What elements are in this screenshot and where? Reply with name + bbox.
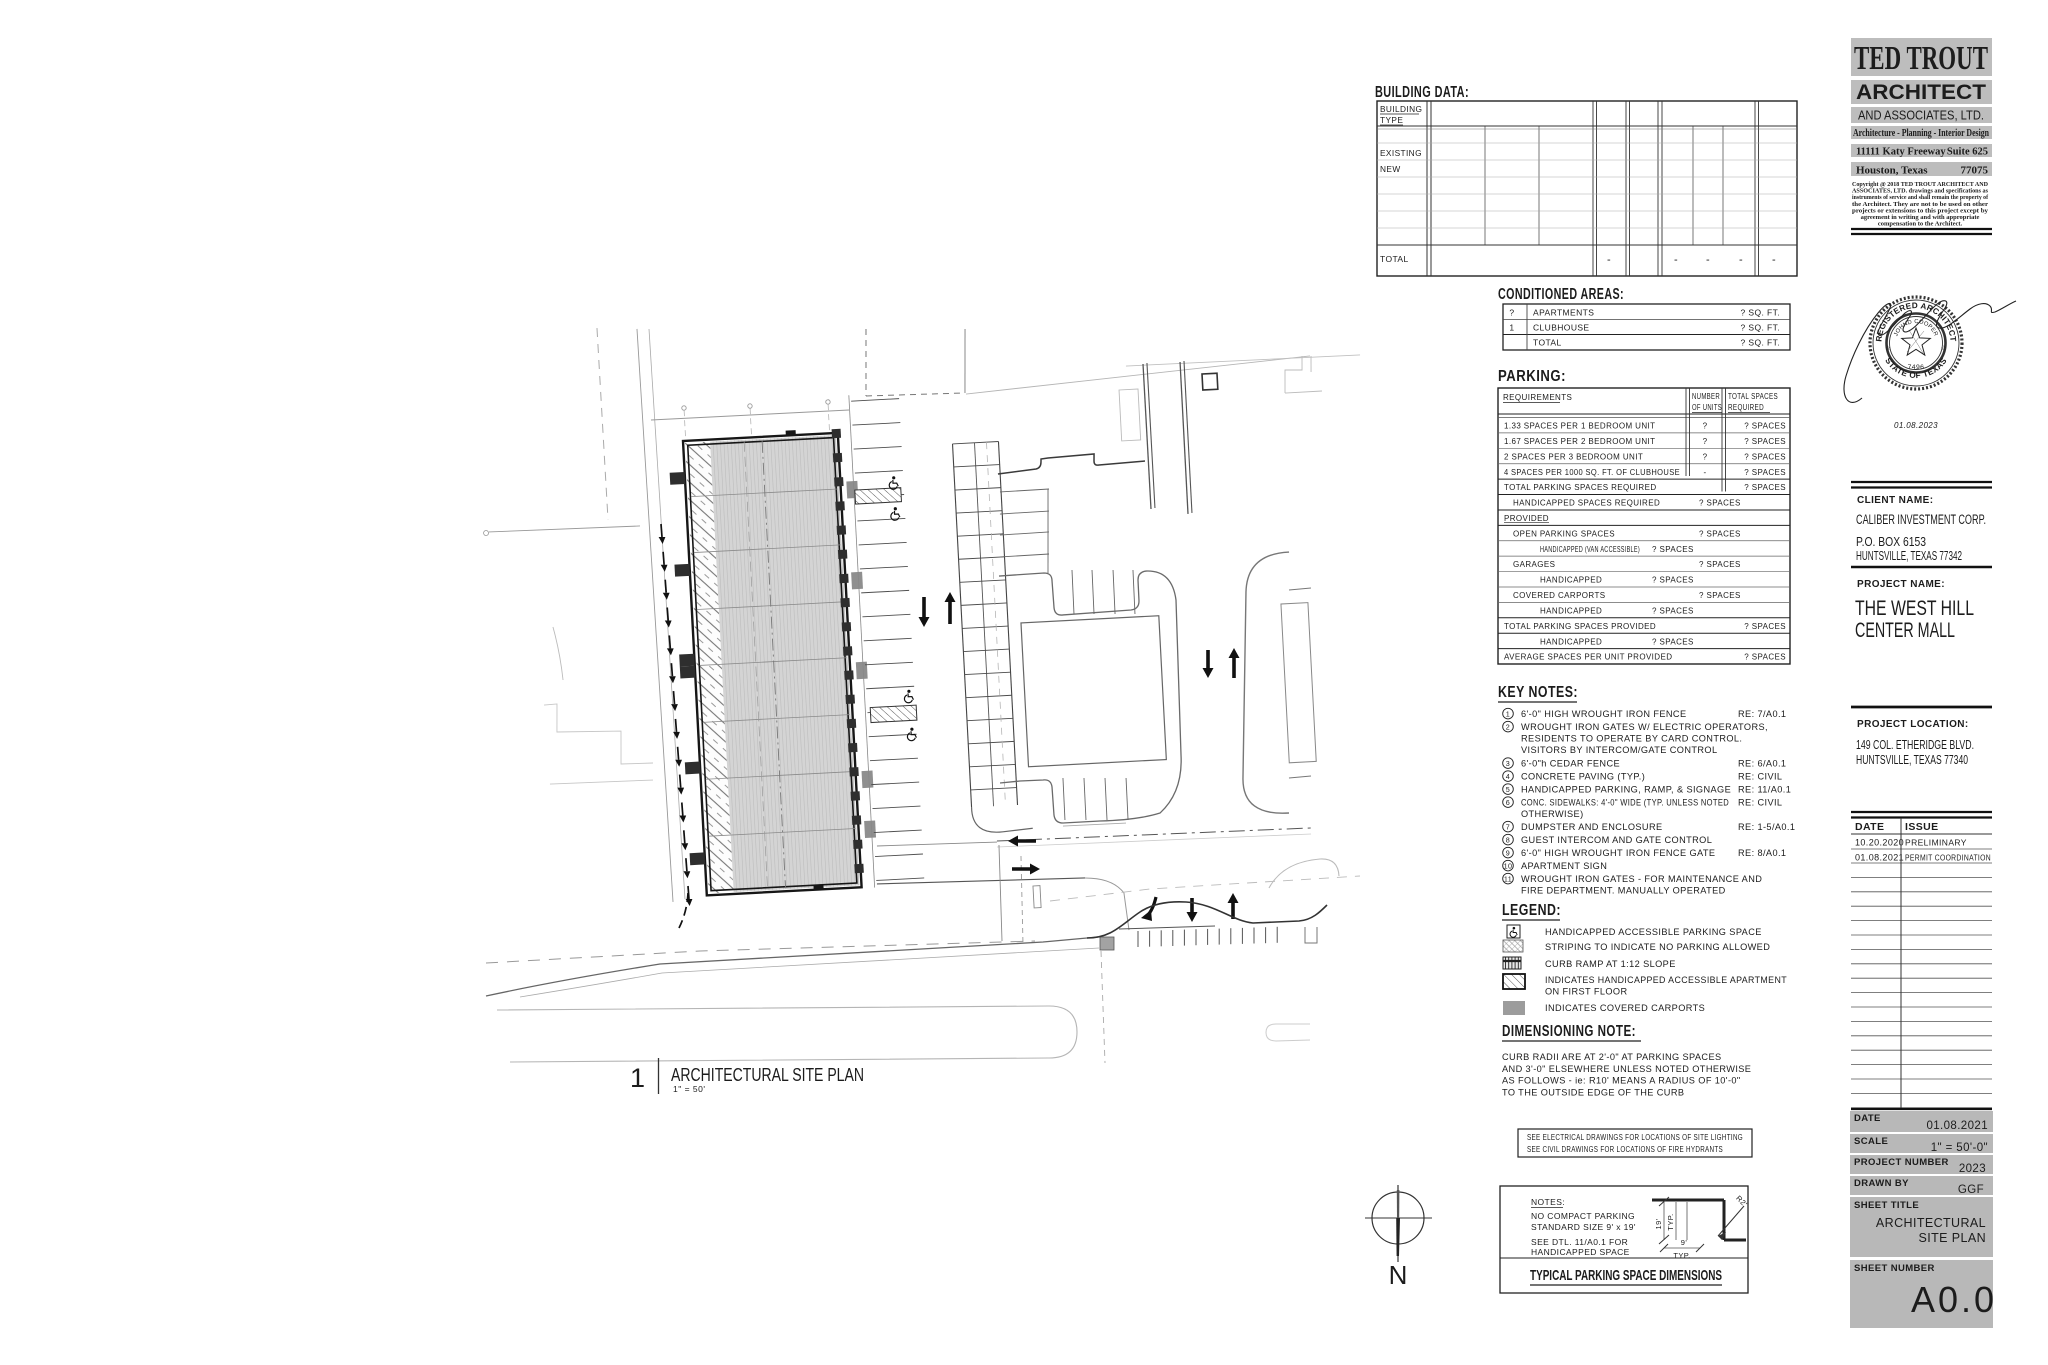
svg-text:CALIBER INVESTMENT CORP.: CALIBER INVESTMENT CORP. [1856, 512, 1986, 527]
svg-text:FIRE DEPARTMENT. MANUALLY OPE: FIRE DEPARTMENT. MANUALLY OPERATED [1521, 886, 1726, 896]
svg-text:?: ? [1509, 308, 1514, 318]
svg-text:11: 11 [1504, 874, 1512, 883]
svg-text:HUNTSVILLE, TEXAS 77342: HUNTSVILLE, TEXAS 77342 [1856, 549, 1962, 563]
svg-text:SHEET NUMBER: SHEET NUMBER [1854, 1263, 1935, 1274]
svg-text:? SPACES: ? SPACES [1744, 422, 1786, 431]
svg-text:LEGEND:: LEGEND: [1502, 902, 1561, 919]
svg-text:REQUIRED: REQUIRED [1728, 403, 1764, 412]
svg-text:OTHERWISE): OTHERWISE) [1521, 809, 1584, 819]
svg-text:NEW: NEW [1380, 164, 1401, 174]
svg-text:N: N [1389, 1260, 1408, 1290]
svg-text:CONDITIONED AREAS:: CONDITIONED AREAS: [1498, 286, 1624, 303]
svg-text:CLUBHOUSE: CLUBHOUSE [1533, 323, 1590, 333]
svg-text:-: - [1772, 254, 1776, 266]
svg-text:BUILDING: BUILDING [1380, 104, 1422, 114]
svg-text:2 SPACES PER 3 BEDROOM UNIT: 2 SPACES PER 3 BEDROOM UNIT [1504, 452, 1643, 461]
svg-text:CURB RADII ARE AT 2'-0" AT PAR: CURB RADII ARE AT 2'-0" AT PARKING SPACE… [1502, 1052, 1722, 1062]
svg-text:PROJECT LOCATION:: PROJECT LOCATION: [1857, 719, 1969, 730]
svg-text:TYPE: TYPE [1380, 115, 1403, 125]
svg-text:TOTAL PARKING SPACES REQUIRED: TOTAL PARKING SPACES REQUIRED [1504, 483, 1657, 492]
svg-text:SHEET TITLE: SHEET TITLE [1854, 1200, 1919, 1211]
svg-text:5: 5 [1506, 785, 1510, 794]
svg-text:NO COMPACT PARKING: NO COMPACT PARKING [1531, 1211, 1635, 1221]
svg-text:CURB RAMP AT 1:12 SLOPE: CURB RAMP AT 1:12 SLOPE [1545, 959, 1676, 969]
svg-text:PRELIMINARY: PRELIMINARY [1905, 838, 1967, 848]
svg-text:TYP.: TYP. [1673, 1251, 1690, 1260]
svg-text:☆: ☆ [1885, 344, 1891, 352]
svg-text:? SPACES: ? SPACES [1744, 622, 1786, 631]
svg-text:7: 7 [1506, 822, 1510, 831]
svg-text:ARCHITECTURAL SITE PLAN: ARCHITECTURAL SITE PLAN [671, 1064, 864, 1085]
svg-text:ON FIRST FLOOR: ON FIRST FLOOR [1545, 987, 1628, 997]
svg-text:CLIENT NAME:: CLIENT NAME: [1857, 495, 1933, 506]
svg-text:10: 10 [1504, 861, 1513, 870]
svg-text:? SPACES: ? SPACES [1652, 606, 1694, 615]
svg-text:ARCHITECT: ARCHITECT [1856, 81, 1986, 104]
svg-text:SEE DTL. 11/A0.1 FOR: SEE DTL. 11/A0.1 FOR [1531, 1237, 1628, 1247]
svg-text:? SQ. FT.: ? SQ. FT. [1741, 338, 1781, 348]
svg-text:? SPACES: ? SPACES [1699, 591, 1741, 600]
svg-text:1" = 50'-0": 1" = 50'-0" [1931, 1142, 1988, 1154]
svg-text:SITE PLAN: SITE PLAN [1918, 1231, 1986, 1245]
svg-text:6'-0"h CEDAR FENCE: 6'-0"h CEDAR FENCE [1521, 759, 1620, 769]
svg-text:DUMPSTER AND ENCLOSURE: DUMPSTER AND ENCLOSURE [1521, 822, 1663, 832]
svg-text:9: 9 [1506, 848, 1510, 857]
svg-text:8: 8 [1506, 835, 1510, 844]
svg-text:EXISTING: EXISTING [1380, 148, 1422, 158]
svg-text:AS FOLLOWS - ie: R10' MEANS A: AS FOLLOWS - ie: R10' MEANS A RADIUS OF … [1502, 1076, 1741, 1086]
svg-text:? SQ. FT.: ? SQ. FT. [1741, 323, 1781, 333]
svg-text:COVERED CARPORTS: COVERED CARPORTS [1513, 591, 1606, 600]
svg-text:HANDICAPPED PARKING, RAMP, & S: HANDICAPPED PARKING, RAMP, & SIGNAGE [1521, 785, 1731, 795]
svg-text:STRIPING TO INDICATE NO PARKIN: STRIPING TO INDICATE NO PARKING ALLOWED [1545, 942, 1770, 952]
svg-text:RE: 7/A0.1: RE: 7/A0.1 [1738, 709, 1786, 719]
svg-text:01.08.2023: 01.08.2023 [1894, 421, 1938, 430]
svg-text:WROUGHT IRON GATES W/ ELECTRIC: WROUGHT IRON GATES W/ ELECTRIC OPERATORS… [1521, 722, 1768, 732]
svg-text:? SPACES: ? SPACES [1699, 499, 1741, 508]
svg-text:CENTER MALL: CENTER MALL [1855, 618, 1955, 642]
svg-text:GUEST INTERCOM AND GATE CONTRO: GUEST INTERCOM AND GATE CONTROL [1521, 835, 1712, 845]
svg-text:77075: 77075 [1961, 165, 1989, 177]
svg-text:REQUIREMENTS: REQUIREMENTS [1503, 393, 1572, 402]
svg-text:AND 3'-0" ELSEWHERE UNLESS NOT: AND 3'-0" ELSEWHERE UNLESS NOTED OTHERWI… [1502, 1064, 1751, 1074]
svg-text:RE: CIVIL: RE: CIVIL [1738, 772, 1782, 782]
svg-text:HANDICAPPED: HANDICAPPED [1540, 637, 1602, 646]
svg-text:HANDICAPPED: HANDICAPPED [1540, 576, 1602, 585]
svg-text:NUMBER: NUMBER [1692, 392, 1720, 401]
svg-text:TOTAL PARKING SPACES PROVIDED: TOTAL PARKING SPACES PROVIDED [1504, 622, 1656, 631]
svg-text:4 SPACES PER 1000 SQ. FT. OF C: 4 SPACES PER 1000 SQ. FT. OF CLUBHOUSE [1504, 468, 1680, 477]
svg-text:TOTAL SPACES: TOTAL SPACES [1728, 392, 1778, 401]
svg-text:INDICATES HANDICAPPED ACCESSIB: INDICATES HANDICAPPED ACCESSIBLE APARTME… [1545, 975, 1787, 985]
svg-text:CONCRETE PAVING (TYP.): CONCRETE PAVING (TYP.) [1521, 772, 1645, 782]
svg-text:1: 1 [630, 1063, 645, 1093]
svg-text:4: 4 [1506, 772, 1510, 781]
svg-text:RE: CIVIL: RE: CIVIL [1738, 798, 1782, 808]
svg-text:1: 1 [1509, 323, 1514, 333]
svg-text:1.33 SPACES PER 1 BEDROOM UNIT: 1.33 SPACES PER 1 BEDROOM UNIT [1504, 422, 1655, 431]
svg-text:KEY NOTES:: KEY NOTES: [1498, 684, 1578, 701]
svg-text:HANDICAPPED SPACES REQUIRED: HANDICAPPED SPACES REQUIRED [1513, 499, 1660, 508]
svg-text:? SPACES: ? SPACES [1744, 483, 1786, 492]
svg-text:PERMIT COORDINATION: PERMIT COORDINATION [1905, 853, 1991, 863]
svg-text:INDICATES COVERED CARPORTS: INDICATES COVERED CARPORTS [1545, 1003, 1705, 1013]
svg-text:CONC. SIDEWALKS: 4'-0" WIDE (: CONC. SIDEWALKS: 4'-0" WIDE (TYP. UNLESS… [1521, 798, 1729, 808]
svg-text:DIMENSIONING NOTE:: DIMENSIONING NOTE: [1502, 1023, 1636, 1040]
svg-text:HANDICAPPED: HANDICAPPED [1540, 606, 1602, 615]
svg-text:BUILDING DATA:: BUILDING DATA: [1375, 84, 1469, 101]
svg-text:TED TROUT: TED TROUT [1854, 40, 1988, 77]
svg-text:-: - [1706, 254, 1710, 266]
svg-text:SEE CIVIL DRAWINGS FOR LOCATIO: SEE CIVIL DRAWINGS FOR LOCATIONS OF FIRE… [1527, 1145, 1723, 1154]
svg-text:ARCHITECTURAL: ARCHITECTURAL [1876, 1216, 1986, 1230]
svg-text:DRAWN BY: DRAWN BY [1854, 1178, 1909, 1189]
svg-text:RE: 8/A0.1: RE: 8/A0.1 [1738, 848, 1786, 858]
svg-text:P.O. BOX 6153: P.O. BOX 6153 [1856, 535, 1926, 549]
svg-text:?: ? [1703, 452, 1708, 461]
svg-text:PROJECT NUMBER: PROJECT NUMBER [1854, 1157, 1949, 1168]
svg-text:? SPACES: ? SPACES [1652, 576, 1694, 585]
svg-text:RESIDENTS TO OPERATE BY CARD C: RESIDENTS TO OPERATE BY CARD CONTROL. [1521, 734, 1742, 744]
svg-text:SCALE: SCALE [1854, 1136, 1888, 1147]
svg-text:01.08.2021: 01.08.2021 [1926, 1120, 1988, 1132]
svg-text:GARAGES: GARAGES [1513, 560, 1555, 569]
svg-text:APARTMENT SIGN: APARTMENT SIGN [1521, 861, 1607, 871]
svg-text:19': 19' [1654, 1218, 1663, 1229]
svg-text:Architecture - Planning - Inte: Architecture - Planning - Interior Desig… [1853, 128, 1989, 139]
svg-text:6: 6 [1506, 798, 1510, 807]
svg-text:TOTAL: TOTAL [1533, 338, 1562, 348]
svg-text:? SPACES: ? SPACES [1699, 529, 1741, 538]
svg-text:VISITORS BY INTERCOM/GATE CONT: VISITORS BY INTERCOM/GATE CONTROL [1521, 745, 1717, 755]
svg-text:10.20.2020: 10.20.2020 [1855, 838, 1904, 848]
svg-text:-: - [1739, 254, 1743, 266]
svg-text:01.08.2021: 01.08.2021 [1855, 853, 1904, 863]
svg-text:RE: 6/A0.1: RE: 6/A0.1 [1738, 759, 1786, 769]
svg-text:6'-0" HIGH WROUGHT IRON FENCE: 6'-0" HIGH WROUGHT IRON FENCE GATE [1521, 848, 1715, 858]
svg-text:NOTES:: NOTES: [1531, 1197, 1565, 1207]
svg-text:HANDICAPPED ACCESSIBLE PARKING: HANDICAPPED ACCESSIBLE PARKING SPACE [1545, 927, 1762, 937]
svg-text:ISSUE: ISSUE [1905, 821, 1939, 833]
svg-text:3: 3 [1506, 759, 1510, 768]
svg-text:TO THE OUTSIDE EDGE OF THE CUR: TO THE OUTSIDE EDGE OF THE CURB [1502, 1087, 1684, 1097]
svg-text:compensation to the Archite: compensation to the Architect. [1878, 221, 1963, 228]
svg-text:1.67 SPACES PER 2 BEDROOM UNIT: 1.67 SPACES PER 2 BEDROOM UNIT [1504, 437, 1655, 446]
svg-text:2: 2 [1506, 722, 1510, 731]
svg-text:OF UNITS: OF UNITS [1692, 403, 1722, 412]
svg-text:? SPACES: ? SPACES [1744, 452, 1786, 461]
svg-text:Suite 625: Suite 625 [1947, 147, 1988, 158]
svg-text:1" = 50': 1" = 50' [673, 1084, 706, 1094]
svg-text:SEE ELECTRICAL DRAWINGS FOR LO: SEE ELECTRICAL DRAWINGS FOR LOCATIONS OF… [1527, 1133, 1743, 1142]
svg-text:2023: 2023 [1959, 1163, 1986, 1175]
svg-text:?: ? [1703, 422, 1708, 431]
svg-text:A0.0: A0.0 [1911, 1279, 1997, 1320]
svg-text:HANDICAPPED SPACE: HANDICAPPED SPACE [1531, 1247, 1630, 1257]
svg-text:? SPACES: ? SPACES [1699, 560, 1741, 569]
svg-text:? SPACES: ? SPACES [1744, 653, 1786, 662]
svg-text:THE WEST HILL: THE WEST HILL [1855, 596, 1974, 620]
svg-text:1: 1 [1506, 709, 1510, 718]
svg-text:DATE: DATE [1854, 1113, 1881, 1124]
svg-text:PARKING:: PARKING: [1498, 368, 1566, 385]
svg-text:AND ASSOCIATES, LTD.: AND ASSOCIATES, LTD. [1858, 109, 1984, 123]
svg-text:? SPACES: ? SPACES [1744, 468, 1786, 477]
svg-text:11111 Katy Freeway: 11111 Katy Freeway [1856, 147, 1946, 158]
svg-text:? SPACES: ? SPACES [1744, 437, 1786, 446]
svg-text:AVERAGE SPACES PER UNIT PROVID: AVERAGE SPACES PER UNIT PROVIDED [1504, 653, 1672, 662]
svg-text:RE: 1-5/A0.1: RE: 1-5/A0.1 [1738, 822, 1795, 832]
svg-text:☆: ☆ [1941, 344, 1947, 352]
svg-text:TYPICAL PARKING SPACE DIMENSIO: TYPICAL PARKING SPACE DIMENSIONS [1530, 1267, 1722, 1284]
svg-text:APARTMENTS: APARTMENTS [1533, 308, 1594, 318]
svg-text:149 COL. ETHERIDGE BLVD.: 149 COL. ETHERIDGE BLVD. [1856, 738, 1974, 752]
svg-text:RE: 11/A0.1: RE: 11/A0.1 [1738, 785, 1791, 795]
svg-text:WROUGHT IRON GATES - FOR MAINT: WROUGHT IRON GATES - FOR MAINTENANCE AND [1521, 874, 1762, 884]
svg-text:? SPACES: ? SPACES [1652, 637, 1694, 646]
svg-text:DATE: DATE [1855, 821, 1884, 833]
svg-text:? SQ. FT.: ? SQ. FT. [1741, 308, 1781, 318]
svg-text:-: - [1703, 468, 1706, 477]
svg-text:-: - [1607, 254, 1611, 266]
svg-text:TOTAL: TOTAL [1380, 254, 1409, 264]
svg-text:PROJECT NAME:: PROJECT NAME: [1857, 579, 1945, 590]
svg-text:PROVIDED: PROVIDED [1504, 514, 1549, 523]
svg-text:-: - [1674, 254, 1678, 266]
svg-text:7496: 7496 [1908, 364, 1925, 371]
svg-text:Houston, Texas: Houston, Texas [1856, 165, 1928, 177]
svg-text:6'-0" HIGH WROUGHT IRON FENCE: 6'-0" HIGH WROUGHT IRON FENCE [1521, 709, 1687, 719]
svg-text:STANDARD SIZE 9' x 19': STANDARD SIZE 9' x 19' [1531, 1222, 1636, 1232]
svg-text:HANDICAPPED (VAN ACCESSIBLE): HANDICAPPED (VAN ACCESSIBLE) [1540, 545, 1640, 554]
svg-text:?: ? [1703, 437, 1708, 446]
svg-text:? SPACES: ? SPACES [1652, 545, 1694, 554]
svg-text:HUNTSVILLE, TEXAS 77340: HUNTSVILLE, TEXAS 77340 [1856, 753, 1968, 767]
svg-text:OPEN PARKING SPACES: OPEN PARKING SPACES [1513, 529, 1615, 538]
svg-text:GGF: GGF [1958, 1184, 1984, 1196]
svg-text:TYP.: TYP. [1666, 1213, 1675, 1230]
svg-text:9': 9' [1681, 1238, 1688, 1247]
